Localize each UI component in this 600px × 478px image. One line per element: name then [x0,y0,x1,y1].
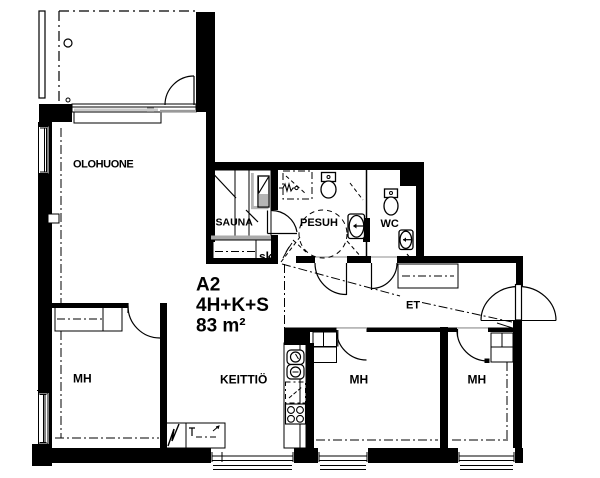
svg-text:SAUNA: SAUNA [216,217,254,229]
svg-text:MH: MH [350,373,369,387]
svg-text:sk: sk [259,250,273,264]
svg-text:MH: MH [73,372,92,386]
svg-text:4H+K+S: 4H+K+S [196,295,269,316]
svg-text:A2: A2 [196,275,220,296]
svg-text:WC: WC [381,218,399,230]
svg-text:83 m²: 83 m² [196,316,246,337]
svg-text:PESUH: PESUH [300,217,338,229]
svg-text:ET: ET [406,300,420,312]
svg-text:OLOHUONE: OLOHUONE [73,159,133,171]
svg-text:MH: MH [468,373,487,387]
svg-text:KEITTIÖ: KEITTIÖ [220,372,267,387]
